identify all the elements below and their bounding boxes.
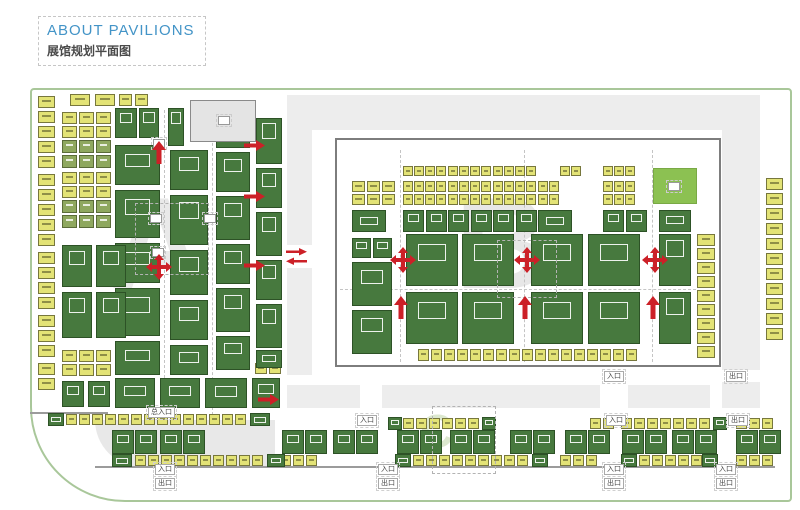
booth — [403, 210, 424, 232]
booth — [235, 414, 246, 425]
booth — [697, 346, 715, 358]
booth — [749, 455, 760, 466]
booth — [448, 166, 458, 176]
booth — [209, 414, 220, 425]
booth — [62, 172, 77, 184]
booth — [504, 194, 514, 205]
booth — [560, 455, 571, 466]
booth — [216, 152, 250, 192]
booth — [414, 166, 424, 176]
booth — [613, 349, 624, 361]
aisle-marker — [150, 214, 162, 223]
booth — [504, 455, 515, 466]
booth — [79, 140, 94, 153]
booth — [96, 112, 111, 124]
booth — [352, 310, 392, 354]
booth — [79, 215, 94, 228]
booth — [170, 300, 208, 340]
corridor — [287, 385, 360, 408]
booth — [766, 193, 783, 205]
booth — [626, 210, 647, 232]
booth — [139, 108, 159, 138]
booth — [352, 262, 392, 306]
booth — [600, 349, 611, 361]
direction-arrow-cross — [390, 247, 416, 278]
booth — [388, 417, 402, 430]
booth — [565, 430, 587, 454]
booth — [713, 417, 727, 430]
booth — [96, 292, 126, 338]
booth — [766, 223, 783, 235]
booth — [367, 194, 380, 205]
booth — [38, 174, 55, 186]
aisle-marker — [218, 116, 230, 125]
booth — [625, 194, 635, 205]
booth — [96, 350, 111, 362]
booth — [538, 210, 572, 232]
corridor — [287, 95, 312, 245]
booth — [659, 210, 691, 232]
booth — [686, 418, 697, 429]
booth — [766, 238, 783, 250]
booth — [481, 166, 491, 176]
booth — [510, 430, 532, 454]
booth — [352, 210, 386, 232]
booth — [418, 349, 429, 361]
booth — [79, 350, 94, 362]
booth — [112, 454, 132, 467]
booth — [588, 234, 640, 286]
exit-label: 出口 — [604, 478, 624, 489]
booth — [762, 418, 773, 429]
booth — [647, 418, 658, 429]
booth — [515, 194, 525, 205]
booth — [436, 194, 446, 205]
booth — [170, 345, 208, 375]
booth — [96, 245, 126, 287]
booth — [603, 194, 613, 205]
booth — [766, 178, 783, 190]
booth — [96, 186, 111, 198]
direction-arrow-up — [394, 296, 408, 324]
booth — [590, 418, 601, 429]
booth — [38, 315, 55, 327]
booth — [115, 341, 160, 375]
booth — [205, 378, 247, 408]
booth — [62, 381, 84, 407]
booth — [115, 108, 137, 138]
booth — [431, 349, 442, 361]
booth — [603, 181, 613, 192]
booth — [305, 430, 327, 454]
booth — [382, 194, 395, 205]
booth — [333, 430, 355, 454]
booth — [62, 186, 77, 198]
page-title-box: ABOUT PAVILIONS 展馆规划平面图 — [38, 16, 206, 66]
booth — [766, 208, 783, 220]
booth — [736, 430, 758, 454]
booth — [62, 126, 77, 138]
entrance-label: 入口 — [604, 371, 624, 382]
booth — [509, 349, 520, 361]
direction-arrow-cross — [514, 247, 540, 278]
page-title-en: ABOUT PAVILIONS — [47, 22, 195, 39]
corridor — [287, 268, 312, 375]
aisle-marker — [204, 214, 216, 223]
entrance-label: 入口 — [604, 464, 624, 475]
booth — [38, 297, 55, 309]
exit-label: 出口 — [378, 478, 398, 489]
booth — [62, 215, 77, 228]
booth — [587, 349, 598, 361]
booth — [425, 166, 435, 176]
corridor — [722, 130, 760, 370]
direction-arrow-cross — [146, 254, 172, 285]
booth — [517, 455, 528, 466]
booth — [403, 181, 413, 192]
booth — [414, 181, 424, 192]
booth — [496, 349, 507, 361]
booth — [403, 166, 413, 176]
booth — [672, 430, 694, 454]
booth — [200, 455, 211, 466]
booth — [526, 181, 536, 192]
booth — [448, 181, 458, 192]
booth — [470, 194, 480, 205]
booth — [470, 181, 480, 192]
booth — [425, 181, 435, 192]
booth — [639, 455, 650, 466]
booth — [222, 414, 233, 425]
booth — [367, 181, 380, 192]
booth — [699, 418, 710, 429]
booth — [79, 155, 94, 168]
booth — [403, 194, 413, 205]
booth — [549, 181, 559, 192]
direction-arrow-pair — [286, 248, 307, 270]
booth — [216, 336, 250, 370]
gate-label: 入口出口 — [378, 464, 398, 489]
booth — [614, 166, 624, 176]
booth — [749, 418, 760, 429]
booth — [634, 418, 645, 429]
booth — [652, 455, 663, 466]
booth — [112, 430, 134, 454]
booth — [560, 166, 570, 176]
booth — [62, 364, 77, 376]
booth — [531, 292, 583, 344]
booth — [293, 455, 304, 466]
booth — [436, 181, 446, 192]
booth — [70, 94, 90, 106]
booth — [504, 181, 514, 192]
exit-label: 出口 — [155, 478, 175, 489]
booth — [571, 166, 581, 176]
booth — [352, 194, 365, 205]
booth — [38, 267, 55, 279]
booth — [38, 234, 55, 246]
booth — [493, 210, 514, 232]
booth — [183, 430, 205, 454]
booth — [762, 455, 773, 466]
booth — [493, 166, 503, 176]
booth — [532, 454, 548, 467]
booth — [697, 318, 715, 330]
booth — [766, 253, 783, 265]
booth — [470, 349, 481, 361]
booth — [356, 430, 378, 454]
booth — [697, 290, 715, 302]
page-title-zh: 展馆规划平面图 — [47, 42, 195, 59]
gate-label: 入口出口 — [604, 464, 624, 489]
booth — [252, 455, 263, 466]
booth — [444, 349, 455, 361]
booth — [96, 140, 111, 153]
booth — [766, 298, 783, 310]
gate-label: 入口出口 — [155, 464, 175, 489]
booth — [697, 276, 715, 288]
booth — [92, 414, 103, 425]
entrance-label: 入口 — [606, 415, 626, 426]
booth — [62, 292, 92, 338]
booth — [561, 349, 572, 361]
booth — [759, 430, 781, 454]
booth — [691, 455, 702, 466]
booth — [448, 194, 458, 205]
booth — [515, 181, 525, 192]
booth — [38, 141, 55, 153]
booth — [448, 210, 469, 232]
booth — [38, 204, 55, 216]
booth — [88, 381, 110, 407]
booth — [625, 166, 635, 176]
booth — [79, 112, 94, 124]
booth — [131, 414, 142, 425]
booth — [119, 94, 132, 106]
booth — [426, 210, 447, 232]
booth — [425, 194, 435, 205]
booth — [697, 304, 715, 316]
booth — [736, 455, 747, 466]
booth — [79, 414, 90, 425]
booth — [586, 455, 597, 466]
entrance-label: 入口 — [357, 415, 377, 426]
booth — [673, 418, 684, 429]
booth — [96, 172, 111, 184]
booth — [493, 194, 503, 205]
booth — [588, 430, 610, 454]
booth — [766, 313, 783, 325]
booth — [79, 200, 94, 213]
booth — [115, 378, 155, 408]
booth — [79, 186, 94, 198]
booth — [62, 140, 77, 153]
booth — [481, 194, 491, 205]
booth — [96, 155, 111, 168]
direction-arrow-right — [244, 189, 265, 207]
exit-label: 出口 — [728, 415, 748, 426]
booth — [256, 350, 282, 368]
aisle-divider — [212, 108, 213, 415]
booth — [659, 292, 691, 344]
booth — [538, 181, 548, 192]
booth — [135, 94, 148, 106]
booth — [352, 238, 371, 258]
booth — [574, 349, 585, 361]
booth — [62, 200, 77, 213]
direction-arrow-cross — [642, 247, 668, 278]
booth — [160, 430, 182, 454]
booth — [397, 430, 419, 454]
direction-arrow-right — [244, 258, 265, 276]
booth — [403, 418, 414, 429]
booth — [697, 332, 715, 344]
booth — [96, 364, 111, 376]
booth — [62, 112, 77, 124]
booth — [538, 194, 548, 205]
booth — [535, 349, 546, 361]
booth — [603, 166, 613, 176]
booth — [282, 430, 304, 454]
booth — [459, 181, 469, 192]
booth — [695, 430, 717, 454]
booth — [416, 418, 427, 429]
booth — [105, 414, 116, 425]
booth — [306, 455, 317, 466]
booth — [170, 150, 208, 190]
booth — [678, 455, 689, 466]
booth — [196, 414, 207, 425]
exit-label: 出口 — [716, 478, 736, 489]
booth — [213, 455, 224, 466]
exit-label: 出口 — [726, 371, 746, 382]
booth — [38, 252, 55, 264]
booth — [38, 330, 55, 342]
booth — [38, 378, 55, 390]
entrance-label: 入口 — [155, 464, 175, 475]
booth — [697, 262, 715, 274]
booth — [135, 455, 146, 466]
booth — [549, 194, 559, 205]
booth — [522, 349, 533, 361]
booth — [226, 455, 237, 466]
corridor — [722, 382, 760, 408]
booth — [38, 219, 55, 231]
booth — [660, 418, 671, 429]
direction-arrow-right — [244, 138, 265, 156]
booth — [471, 210, 492, 232]
booth — [38, 282, 55, 294]
booth — [267, 454, 285, 467]
booth — [168, 108, 184, 146]
corridor — [312, 95, 760, 130]
booth — [160, 378, 200, 408]
booth — [96, 200, 111, 213]
booth — [459, 166, 469, 176]
booth — [187, 455, 198, 466]
booth — [352, 181, 365, 192]
booth — [504, 166, 514, 176]
booth — [533, 430, 555, 454]
booth — [462, 292, 514, 344]
booth — [38, 189, 55, 201]
booth — [625, 181, 635, 192]
booth — [588, 292, 640, 344]
direction-arrow-up — [646, 296, 660, 324]
pavilion-plan-page: ABOUT PAVILIONS 展馆规划平面图 ABC入口出口入口入口出口总入口… — [0, 0, 800, 510]
booth — [766, 328, 783, 340]
main-entrance-label: 总入口 — [148, 407, 175, 418]
booth — [766, 283, 783, 295]
direction-arrow-up — [518, 296, 532, 324]
booth — [62, 350, 77, 362]
booth — [256, 304, 282, 348]
booth — [457, 349, 468, 361]
booth — [515, 166, 525, 176]
booth — [665, 455, 676, 466]
booth — [483, 349, 494, 361]
booth — [38, 345, 55, 357]
booth — [573, 455, 584, 466]
booth — [470, 166, 480, 176]
booth — [697, 248, 715, 260]
booth — [697, 234, 715, 246]
booth — [622, 430, 644, 454]
booth — [414, 194, 424, 205]
booth — [526, 166, 536, 176]
direction-arrow-right — [258, 392, 279, 410]
booth — [382, 181, 395, 192]
booth — [614, 181, 624, 192]
aisle-marker — [668, 182, 680, 191]
booth — [79, 172, 94, 184]
booth — [516, 210, 537, 232]
booth — [38, 363, 55, 375]
booth — [135, 430, 157, 454]
booth — [256, 212, 282, 256]
booth — [96, 126, 111, 138]
booth — [626, 349, 637, 361]
booth — [66, 414, 77, 425]
booth — [38, 111, 55, 123]
booth — [481, 181, 491, 192]
booth — [603, 210, 624, 232]
booth — [766, 268, 783, 280]
booth — [183, 414, 194, 425]
booth — [62, 245, 92, 287]
booth — [38, 96, 55, 108]
booth — [118, 414, 129, 425]
booth — [645, 430, 667, 454]
booth — [38, 126, 55, 138]
direction-arrow-up — [152, 141, 166, 169]
booth — [79, 126, 94, 138]
booth — [614, 194, 624, 205]
booth — [493, 181, 503, 192]
booth — [174, 455, 185, 466]
booth — [413, 455, 424, 466]
booth — [96, 215, 111, 228]
booth — [216, 288, 250, 332]
booth — [548, 349, 559, 361]
booth — [239, 455, 250, 466]
entrance-label: 入口 — [716, 464, 736, 475]
corridor — [628, 385, 710, 408]
booth — [79, 364, 94, 376]
booth — [62, 155, 77, 168]
corridor — [382, 385, 600, 408]
entrance-label: 入口 — [378, 464, 398, 475]
